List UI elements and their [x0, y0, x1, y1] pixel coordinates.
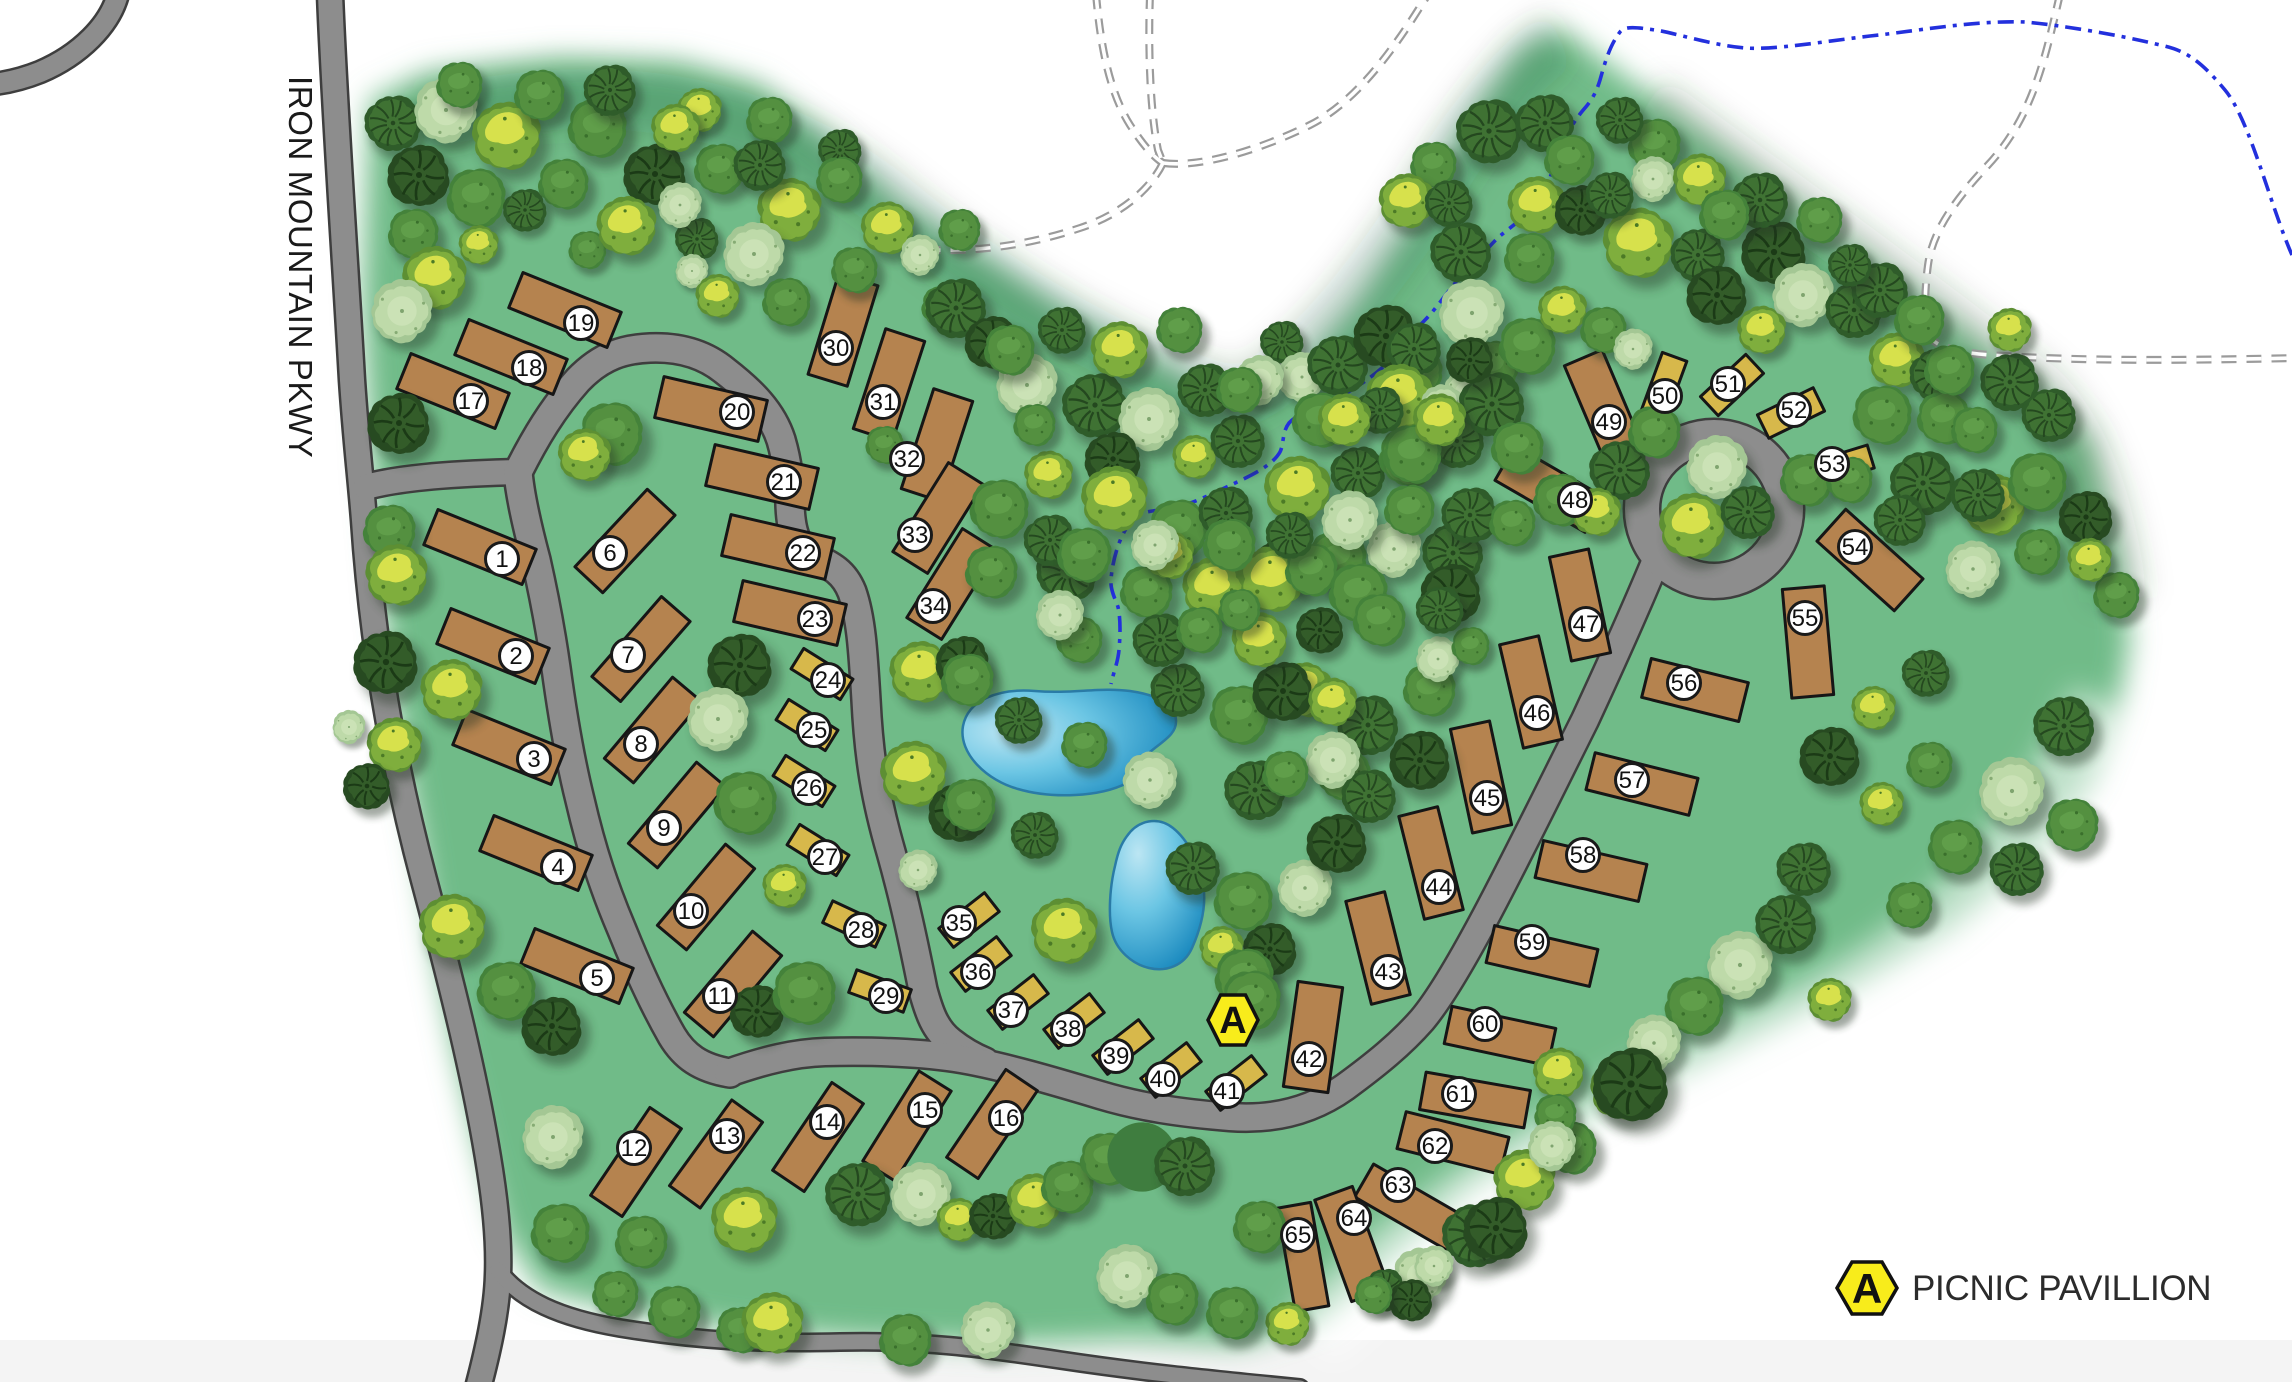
svg-text:1: 1 — [495, 546, 508, 573]
svg-text:51: 51 — [1715, 371, 1742, 398]
svg-text:21: 21 — [771, 469, 798, 496]
svg-text:37: 37 — [998, 997, 1025, 1024]
svg-text:36: 36 — [965, 959, 992, 986]
svg-text:11: 11 — [708, 983, 733, 1010]
svg-text:47: 47 — [1573, 611, 1600, 638]
svg-text:35: 35 — [946, 910, 973, 937]
svg-text:59: 59 — [1519, 929, 1546, 956]
svg-text:63: 63 — [1385, 1172, 1412, 1199]
svg-text:60: 60 — [1472, 1011, 1499, 1038]
svg-text:53: 53 — [1819, 451, 1846, 478]
svg-text:16: 16 — [993, 1105, 1020, 1132]
svg-text:17: 17 — [458, 388, 485, 415]
svg-text:22: 22 — [790, 540, 817, 567]
svg-text:9: 9 — [657, 815, 670, 842]
svg-text:31: 31 — [870, 389, 897, 416]
svg-text:23: 23 — [802, 606, 829, 633]
svg-text:42: 42 — [1296, 1046, 1323, 1073]
svg-text:7: 7 — [621, 642, 634, 669]
svg-text:3: 3 — [527, 746, 540, 773]
svg-text:27: 27 — [812, 844, 839, 871]
svg-text:50: 50 — [1652, 383, 1679, 410]
svg-text:IRON MOUNTAIN PKWY: IRON MOUNTAIN PKWY — [282, 76, 319, 458]
svg-text:45: 45 — [1474, 785, 1501, 812]
svg-text:64: 64 — [1341, 1205, 1368, 1232]
svg-text:8: 8 — [634, 731, 647, 758]
svg-text:61: 61 — [1446, 1081, 1473, 1108]
svg-text:44: 44 — [1426, 874, 1453, 901]
svg-text:19: 19 — [568, 310, 595, 337]
svg-text:41: 41 — [1214, 1078, 1241, 1105]
svg-text:58: 58 — [1570, 842, 1597, 869]
svg-text:40: 40 — [1150, 1066, 1177, 1093]
svg-text:A: A — [1852, 1265, 1882, 1312]
svg-text:4: 4 — [551, 854, 564, 881]
svg-text:5: 5 — [590, 965, 603, 992]
svg-text:54: 54 — [1842, 534, 1869, 561]
svg-text:33: 33 — [902, 522, 929, 549]
svg-text:PICNIC PAVILLION: PICNIC PAVILLION — [1912, 1269, 2211, 1308]
svg-text:30: 30 — [823, 335, 850, 362]
svg-text:56: 56 — [1671, 670, 1698, 697]
svg-text:65: 65 — [1285, 1222, 1312, 1249]
svg-text:10: 10 — [678, 898, 705, 925]
svg-text:43: 43 — [1375, 959, 1402, 986]
svg-text:14: 14 — [814, 1109, 841, 1136]
svg-text:18: 18 — [516, 355, 543, 382]
svg-text:29: 29 — [873, 983, 900, 1010]
svg-text:6: 6 — [603, 540, 616, 567]
svg-text:48: 48 — [1562, 487, 1589, 514]
svg-text:25: 25 — [801, 717, 828, 744]
svg-text:24: 24 — [815, 667, 842, 694]
svg-text:15: 15 — [912, 1097, 939, 1124]
svg-text:2: 2 — [509, 643, 522, 670]
svg-text:55: 55 — [1792, 605, 1819, 632]
svg-text:38: 38 — [1055, 1016, 1082, 1043]
svg-text:12: 12 — [621, 1135, 648, 1162]
svg-text:49: 49 — [1596, 409, 1623, 436]
svg-text:39: 39 — [1103, 1043, 1130, 1070]
svg-text:52: 52 — [1781, 397, 1808, 424]
svg-text:46: 46 — [1524, 700, 1551, 727]
svg-text:57: 57 — [1619, 767, 1646, 794]
svg-text:26: 26 — [796, 775, 823, 802]
svg-text:13: 13 — [714, 1123, 741, 1150]
svg-text:20: 20 — [724, 399, 751, 426]
svg-text:34: 34 — [920, 593, 947, 620]
svg-text:A: A — [1219, 1000, 1246, 1042]
svg-text:32: 32 — [894, 446, 921, 473]
svg-text:28: 28 — [848, 917, 875, 944]
svg-text:62: 62 — [1422, 1133, 1449, 1160]
